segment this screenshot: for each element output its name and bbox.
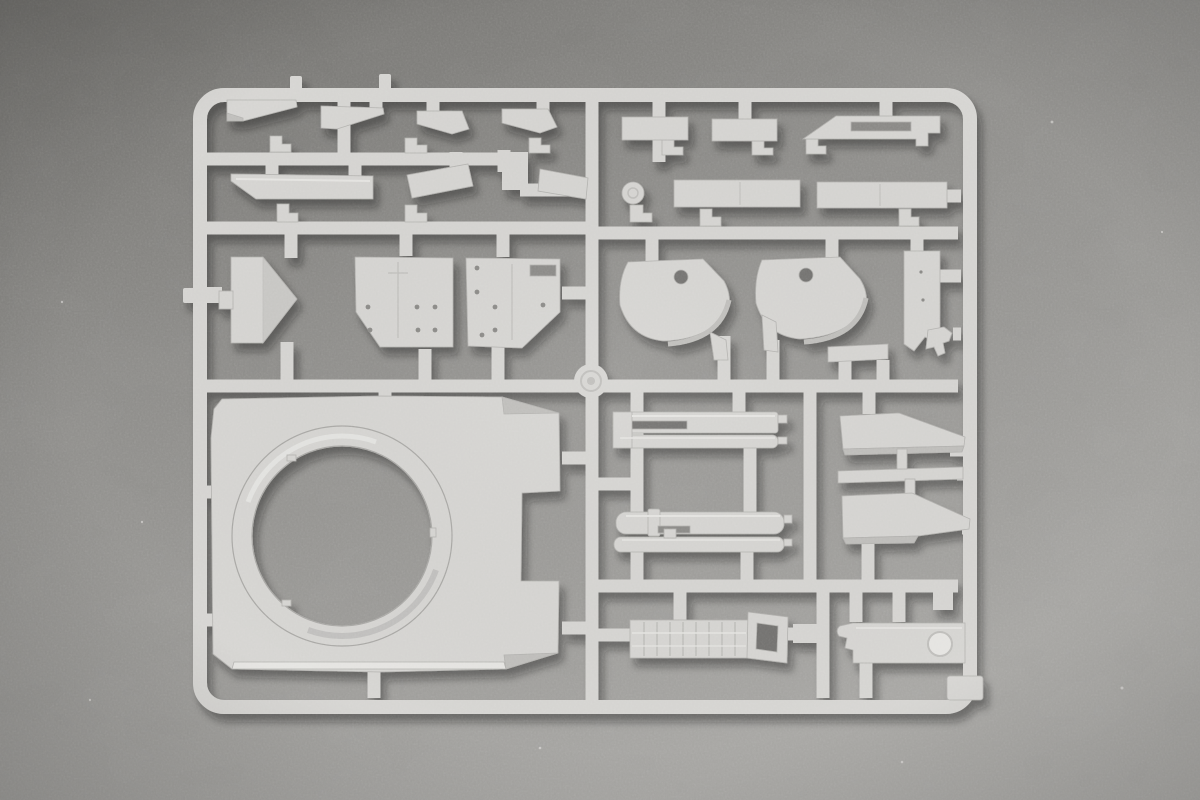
sprue-photo-canvas	[0, 0, 1200, 800]
vignette	[0, 0, 1200, 800]
photo-of-model-kit-sprue	[0, 0, 1200, 800]
